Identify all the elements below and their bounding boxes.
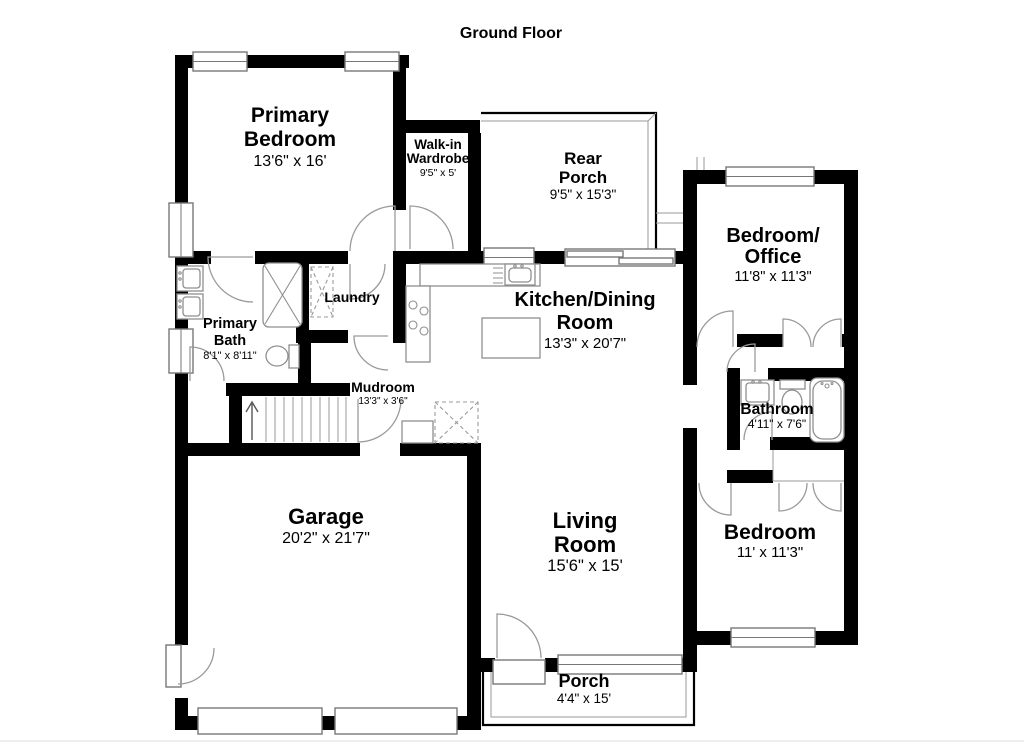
door-arc bbox=[699, 483, 731, 515]
wall bbox=[727, 470, 773, 483]
wall bbox=[298, 330, 311, 390]
wall bbox=[175, 55, 188, 205]
room-label-kitchen-dining: Room bbox=[557, 312, 614, 334]
sliding-door-icon bbox=[565, 249, 675, 266]
floor-plan: Ground Floor Primary Bedroom 13'6" x 16'… bbox=[0, 0, 1024, 745]
room-label-primary-bath: Primary bbox=[203, 316, 257, 332]
room-label-rear-porch: Porch bbox=[559, 168, 607, 187]
side-door-leaf bbox=[166, 645, 181, 687]
closet-front-line bbox=[773, 450, 844, 481]
room-label-bathroom: Bathroom bbox=[740, 401, 813, 418]
floor-plan-canvas: Ground Floor Primary Bedroom 13'6" x 16'… bbox=[0, 0, 1024, 745]
room-label-mudroom: Mudroom bbox=[351, 379, 415, 395]
door-arc bbox=[783, 319, 811, 347]
shower-icon bbox=[263, 263, 302, 327]
wall bbox=[229, 383, 350, 396]
room-dims-mudroom: 13'3" x 3'6" bbox=[358, 396, 408, 407]
kitchen-sink-icon bbox=[505, 264, 535, 285]
room-label-living-room: Living bbox=[553, 508, 618, 533]
door-arc bbox=[779, 483, 807, 511]
door-arc bbox=[813, 483, 841, 511]
room-label-bedroom: Bedroom bbox=[724, 521, 816, 544]
stairs-up-arrow bbox=[246, 402, 258, 440]
door-arc bbox=[697, 311, 733, 347]
room-dims-bedroom: 11' x 11'3" bbox=[737, 544, 803, 561]
room-label-porch: Porch bbox=[558, 671, 609, 691]
door-arc bbox=[727, 344, 755, 372]
garage-door bbox=[198, 708, 322, 734]
front-doorstep bbox=[493, 660, 545, 684]
room-label-primary-bedroom: Bedroom bbox=[244, 128, 336, 151]
room-label-laundry: Laundry bbox=[324, 289, 379, 305]
wall bbox=[737, 334, 783, 347]
door-arc bbox=[410, 206, 453, 249]
wall bbox=[175, 443, 360, 456]
door-arc bbox=[354, 336, 388, 370]
room-dims-bathroom: 4'11" x 7'6" bbox=[748, 417, 806, 431]
mudroom-bench bbox=[402, 421, 433, 443]
wall bbox=[844, 170, 858, 645]
wall bbox=[468, 133, 481, 251]
wall bbox=[255, 251, 348, 264]
door-arc bbox=[208, 257, 253, 302]
window bbox=[345, 52, 399, 71]
mudroom-dashed-closet bbox=[435, 402, 478, 443]
room-dims-living-room: 15'6" x 15' bbox=[547, 557, 622, 575]
room-label-walkin-wardrobe: Walk-in bbox=[414, 137, 462, 152]
room-label-bedroom-office: Office bbox=[745, 246, 802, 268]
door-arc bbox=[497, 614, 541, 658]
wall bbox=[393, 251, 487, 264]
room-label-bedroom-office: Bedroom/ bbox=[726, 225, 820, 247]
bath-vanity-sink-icon bbox=[177, 266, 203, 291]
room-label-living-room: Room bbox=[554, 532, 616, 557]
room-label-walkin-wardrobe: Wardrobe bbox=[407, 151, 470, 166]
page-title: Ground Floor bbox=[460, 25, 562, 42]
bath-vanity-sink-icon bbox=[177, 294, 203, 319]
garage-door bbox=[335, 708, 457, 734]
wall bbox=[534, 251, 567, 264]
wall bbox=[393, 251, 406, 343]
door-arc bbox=[350, 206, 395, 251]
room-dims-porch: 4'4" x 15' bbox=[557, 691, 611, 706]
window bbox=[169, 203, 193, 257]
wall bbox=[842, 334, 858, 347]
porch-outlines bbox=[0, 113, 1024, 741]
room-label-garage: Garage bbox=[288, 504, 364, 529]
room-dims-garage: 20'2" x 21'7" bbox=[282, 530, 370, 547]
room-dims-kitchen-dining: 13'3" x 20'7" bbox=[544, 335, 626, 352]
door-arc bbox=[178, 648, 214, 684]
stairs-icon bbox=[246, 397, 346, 442]
wall bbox=[175, 383, 187, 396]
wall bbox=[393, 68, 406, 210]
room-dims-rear-porch: 9'5" x 15'3" bbox=[550, 187, 617, 202]
room-dims-bedroom-office: 11'8" x 11'3" bbox=[734, 269, 811, 285]
room-dims-primary-bath: 8'1" x 8'11" bbox=[203, 350, 256, 362]
door-arc bbox=[813, 319, 841, 347]
stove-icon bbox=[406, 286, 430, 362]
room-label-primary-bedroom: Primary bbox=[251, 104, 330, 127]
window bbox=[193, 52, 247, 71]
room-label-rear-porch: Rear bbox=[564, 149, 602, 168]
room-dims-walkin-wardrobe: 9'5" x 5' bbox=[420, 167, 456, 179]
window bbox=[731, 628, 815, 647]
wall bbox=[467, 443, 481, 716]
kitchen-island bbox=[482, 318, 540, 358]
window bbox=[726, 167, 814, 186]
wall bbox=[393, 120, 480, 133]
wall bbox=[727, 437, 740, 450]
room-label-primary-bath: Bath bbox=[214, 333, 246, 349]
wall bbox=[683, 170, 697, 385]
wall bbox=[175, 371, 188, 645]
room-label-kitchen-dining: Kitchen/Dining bbox=[514, 289, 655, 311]
toilet-icon bbox=[266, 345, 299, 368]
bathtub-icon bbox=[810, 378, 844, 442]
room-dims-primary-bedroom: 13'6" x 16' bbox=[253, 153, 326, 170]
